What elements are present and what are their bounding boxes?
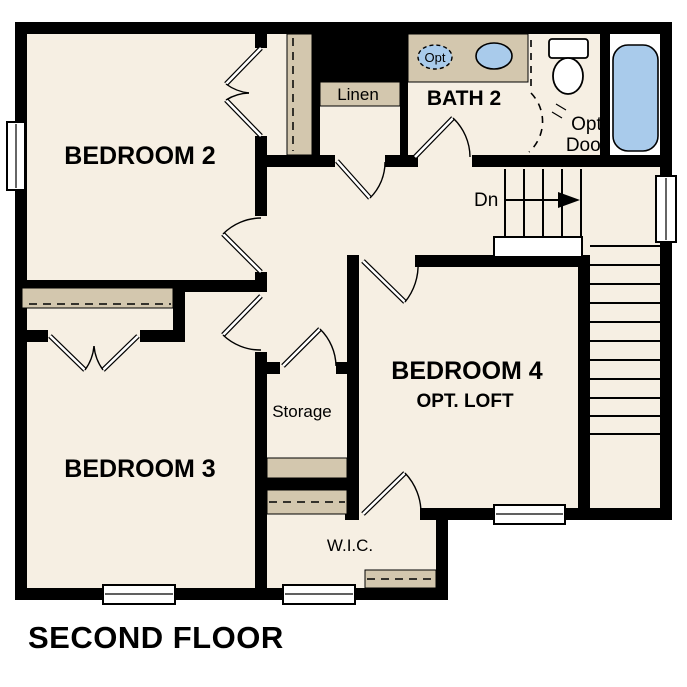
wall-segment	[436, 508, 448, 600]
bedroom3-label: BEDROOM 3	[64, 455, 215, 483]
wall-segment	[15, 22, 27, 600]
wall-segment	[400, 82, 408, 155]
wall-segment	[312, 82, 320, 155]
window-stairwell-east	[656, 176, 676, 242]
wic-label: W.I.C.	[327, 536, 373, 555]
bedroom2-closet-shelf	[287, 34, 312, 155]
wall-segment	[15, 330, 48, 342]
wall-segment	[578, 255, 590, 508]
opt-sink-label: Opt	[425, 50, 446, 65]
wall-segment	[660, 22, 672, 520]
wic-shelf-top	[267, 490, 347, 514]
wall-segment	[336, 362, 359, 374]
wall-segment	[255, 352, 267, 600]
opt-loft-label: OPT. LOFT	[416, 391, 514, 412]
window-bedroom3-south	[103, 585, 175, 604]
window-wic-south	[283, 585, 355, 604]
wall-segment	[255, 136, 267, 216]
toilet-tank	[549, 39, 588, 58]
wall-segment	[385, 155, 418, 167]
opt-door-label-line2: Door	[566, 135, 608, 156]
wall-segment	[472, 155, 672, 167]
wall-segment	[347, 255, 359, 508]
stair-landing	[494, 237, 582, 257]
wall-segment	[255, 478, 359, 490]
wall-segment	[173, 287, 185, 342]
bedroom2-label: BEDROOM 2	[64, 142, 215, 170]
toilet-bowl	[553, 58, 583, 94]
bathtub	[613, 45, 658, 151]
bedroom4-label: BEDROOM 4	[391, 357, 543, 385]
storage-label: Storage	[272, 402, 332, 421]
wall-segment	[255, 34, 267, 48]
sink	[476, 43, 512, 69]
window-bedroom2-west	[7, 122, 25, 190]
wall-segment	[255, 155, 335, 167]
bath2-label: BATH 2	[427, 87, 501, 110]
storage-shelf	[267, 458, 347, 478]
window-bedroom4-south	[494, 505, 565, 524]
wall-segment	[255, 362, 280, 374]
linen-label: Linen	[337, 85, 379, 104]
page-title: SECOND FLOOR	[28, 620, 284, 655]
stairs-down-label: Dn	[474, 190, 498, 211]
floor-plan: Dn	[0, 0, 687, 687]
wall-segment	[15, 588, 448, 600]
wall-segment	[312, 22, 408, 82]
opt-door-label-line1: Opt.	[571, 114, 607, 135]
bedroom3-closet-shelf	[22, 288, 173, 308]
